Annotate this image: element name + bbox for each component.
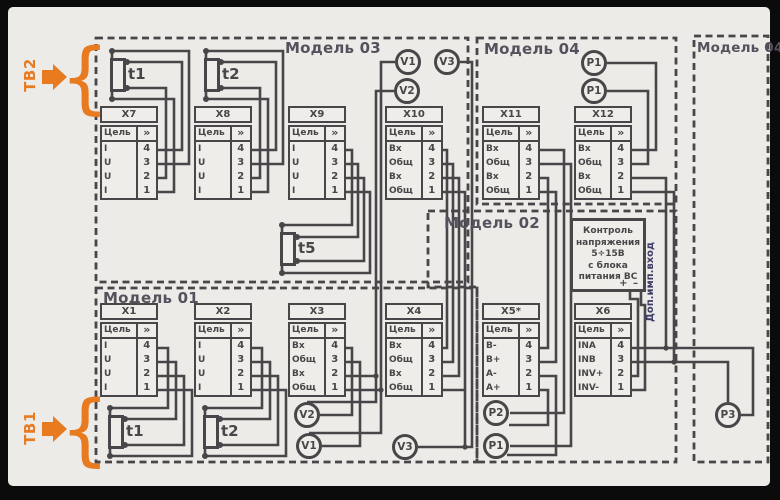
- signal-label: Вх: [486, 170, 518, 184]
- pin-number: 4: [423, 142, 442, 156]
- pin-column: 4321: [138, 339, 157, 395]
- pin-number: 1: [612, 184, 631, 198]
- signal-column: ВхОбщВхОбщ: [387, 142, 423, 198]
- connector-col-goal: Цель: [576, 324, 612, 337]
- connector-x9: X9Цель»IUUI4321: [288, 106, 346, 200]
- sensor-t1-bottom-label: t1: [126, 422, 144, 440]
- connector-col-pins-icon: »: [326, 127, 345, 140]
- signal-label: Вх: [389, 367, 421, 381]
- control-box-line: напряжения: [573, 238, 643, 250]
- signal-label: U: [292, 170, 324, 184]
- sensor-t1-top: [110, 58, 126, 92]
- pin-number: 3: [520, 353, 539, 367]
- connector-rows: ВхОбщВхОбщ4321: [387, 142, 441, 198]
- connector-col-pins-icon: »: [232, 324, 251, 337]
- signal-column: IUUI: [102, 142, 138, 198]
- connector-table: Цель»ВхОбщВхОбщ4321: [385, 322, 443, 397]
- signal-label: Вх: [486, 142, 518, 156]
- connector-title: X12: [574, 106, 632, 123]
- connector-header: Цель»: [196, 324, 250, 339]
- signal-column: В-В+А-А+: [484, 339, 520, 395]
- dop-imp-vhod-label: Доп.имп.вход: [645, 222, 659, 322]
- connector-col-pins-icon: »: [520, 127, 539, 140]
- signal-column: IUUI: [290, 142, 326, 198]
- connector-x10: X10Цель»ВхОбщВхОбщ4321: [385, 106, 443, 200]
- signal-label: Общ: [389, 353, 421, 367]
- pin-number: 2: [612, 170, 631, 184]
- connector-header: Цель»: [387, 324, 441, 339]
- connector-header: Цель»: [484, 324, 538, 339]
- connector-header: Цель»: [290, 127, 344, 142]
- pin-number: 4: [520, 339, 539, 353]
- pin-column: 4321: [612, 339, 631, 395]
- meter-v3-m01: V3: [392, 434, 418, 460]
- control-box-line: 5÷15В: [573, 249, 643, 261]
- signal-label: INV-: [578, 381, 610, 395]
- connector-table: Цель»IUUI4321: [288, 125, 346, 200]
- signal-label: I: [292, 142, 324, 156]
- connector-x5: X5*Цель»В-В+А-А+4321: [482, 303, 540, 397]
- signal-label: Вх: [578, 170, 610, 184]
- connector-col-goal: Цель: [387, 324, 423, 337]
- connector-rows: ВхОбщВхОбщ4321: [387, 339, 441, 395]
- pin-number: 2: [520, 170, 539, 184]
- connector-x3: X3Цель»ВхОбщВхОбщ4321: [288, 303, 346, 397]
- signal-label: INB: [578, 353, 610, 367]
- connector-x12: X12Цель»ВхОбщВхОбщ4321: [574, 106, 632, 200]
- signal-label: Общ: [389, 381, 421, 395]
- pin-number: 3: [612, 156, 631, 170]
- sensor-t2-bottom: [203, 415, 219, 449]
- connector-header: Цель»: [387, 127, 441, 142]
- pin-number: 1: [423, 381, 442, 395]
- sensor-t1-top-label: t1: [128, 65, 146, 83]
- signal-column: IUUI: [196, 142, 232, 198]
- control-box-line: с блока: [573, 261, 643, 273]
- connector-table: Цель»В-В+А-А+4321: [482, 322, 540, 397]
- pin-number: 4: [138, 142, 157, 156]
- connector-x2: X2Цель»IUUI4321: [194, 303, 252, 397]
- signal-label: А-: [486, 367, 518, 381]
- pin-number: 1: [326, 381, 345, 395]
- connector-rows: IUUI4321: [290, 142, 344, 198]
- signal-label: U: [104, 170, 136, 184]
- connector-rows: INAINBINV+INV-4321: [576, 339, 630, 395]
- pin-column: 4321: [326, 339, 345, 395]
- signal-label: I: [198, 339, 230, 353]
- connector-col-goal: Цель: [196, 324, 232, 337]
- sensor-t2-top: [204, 58, 220, 92]
- signal-label: I: [198, 142, 230, 156]
- pin-column: 4321: [423, 142, 442, 198]
- pin-number: 3: [232, 156, 251, 170]
- pin-column: 4321: [232, 339, 251, 395]
- connector-col-goal: Цель: [484, 324, 520, 337]
- connector-col-pins-icon: »: [232, 127, 251, 140]
- connector-table: Цель»INAINBINV+INV-4321: [574, 322, 632, 397]
- connector-col-pins-icon: »: [423, 324, 442, 337]
- connector-title: X5*: [482, 303, 540, 320]
- connector-rows: IUUI4321: [196, 142, 250, 198]
- pin-number: 1: [326, 184, 345, 198]
- pin-number: 2: [326, 170, 345, 184]
- pin-number: 3: [326, 353, 345, 367]
- model-04r-label: Модель 04Р: [697, 40, 780, 56]
- tb2-label: ТВ2: [21, 53, 39, 97]
- pin-number: 4: [612, 339, 631, 353]
- pin-number: 4: [138, 339, 157, 353]
- pin-column: 4321: [232, 142, 251, 198]
- tb2-brace: {: [60, 40, 110, 116]
- pin-number: 3: [520, 156, 539, 170]
- signal-column: INAINBINV+INV-: [576, 339, 612, 395]
- signal-label: Вх: [389, 142, 421, 156]
- model-04-label: Модель 04: [484, 40, 580, 58]
- signal-label: Вх: [389, 339, 421, 353]
- signal-column: ВхОбщВхОбщ: [290, 339, 326, 395]
- signal-label: U: [104, 353, 136, 367]
- signal-label: INA: [578, 339, 610, 353]
- connector-col-goal: Цель: [102, 127, 138, 140]
- signal-label: Общ: [486, 184, 518, 198]
- model-04r-boundary: [694, 36, 768, 462]
- pin-number: 3: [138, 353, 157, 367]
- connector-x11: X11Цель»ВхОбщВхОбщ4321: [482, 106, 540, 200]
- pin-number: 3: [326, 156, 345, 170]
- connector-header: Цель»: [102, 127, 156, 142]
- pin-number: 1: [423, 184, 442, 198]
- pin-number: 1: [232, 381, 251, 395]
- pin-number: 4: [612, 142, 631, 156]
- pin-number: 1: [232, 184, 251, 198]
- meter-v1-m01: V1: [296, 433, 322, 459]
- signal-label: Общ: [292, 353, 324, 367]
- connector-header: Цель»: [576, 324, 630, 339]
- connector-table: Цель»ВхОбщВхОбщ4321: [385, 125, 443, 200]
- signal-label: Вх: [578, 142, 610, 156]
- pin-number: 2: [423, 367, 442, 381]
- connector-table: Цель»ВхОбщВхОбщ4321: [482, 125, 540, 200]
- signal-label: Общ: [389, 184, 421, 198]
- sensor-t5-label: t5: [298, 239, 316, 257]
- pin-number: 2: [326, 367, 345, 381]
- pin-number: 2: [138, 367, 157, 381]
- connector-col-goal: Цель: [290, 324, 326, 337]
- tb1-brace: {: [60, 392, 110, 468]
- connector-x8: X8Цель»IUUI4321: [194, 106, 252, 200]
- signal-label: U: [198, 353, 230, 367]
- connector-col-pins-icon: »: [138, 324, 157, 337]
- pin-number: 3: [612, 353, 631, 367]
- connector-table: Цель»ВхОбщВхОбщ4321: [288, 322, 346, 397]
- connector-rows: IUUI4321: [102, 339, 156, 395]
- sensor-t2-top-label: t2: [222, 65, 240, 83]
- connector-rows: ВхОбщВхОбщ4321: [290, 339, 344, 395]
- signal-label: Вх: [292, 367, 324, 381]
- connector-col-pins-icon: »: [138, 127, 157, 140]
- pin-column: 4321: [612, 142, 631, 198]
- model-01-label: Модель 01: [103, 289, 199, 307]
- connector-col-pins-icon: »: [612, 324, 631, 337]
- signal-label: U: [104, 367, 136, 381]
- connector-rows: ВхОбщВхОбщ4321: [484, 142, 538, 198]
- connector-title: X2: [194, 303, 252, 320]
- signal-label: Общ: [486, 156, 518, 170]
- pin-column: 4321: [423, 339, 442, 395]
- signal-column: IUUI: [196, 339, 232, 395]
- meter-v2-m01: V2: [294, 402, 320, 428]
- pin-number: 1: [138, 381, 157, 395]
- signal-label: Вх: [389, 170, 421, 184]
- connector-table: Цель»IUUI4321: [100, 125, 158, 200]
- pin-number: 2: [612, 367, 631, 381]
- pin-number: 4: [232, 339, 251, 353]
- sensor-t2-bottom-label: t2: [221, 422, 239, 440]
- signal-label: I: [292, 184, 324, 198]
- meter-p2-m02: P2: [483, 400, 509, 426]
- signal-label: I: [198, 184, 230, 198]
- voltage-control-box: Контроль напряжения 5÷15В с блока питани…: [570, 218, 646, 292]
- signal-label: U: [198, 170, 230, 184]
- connector-header: Цель»: [290, 324, 344, 339]
- signal-label: U: [292, 156, 324, 170]
- meter-p1-m04-b: P1: [581, 78, 607, 104]
- meter-v1-top: V1: [395, 49, 421, 75]
- connector-col-pins-icon: »: [520, 324, 539, 337]
- schematic-page: Модель 03 Модель 04 Модель 04Р Модель 02…: [0, 0, 780, 500]
- signal-label: Общ: [578, 156, 610, 170]
- pin-number: 4: [520, 142, 539, 156]
- connector-col-goal: Цель: [387, 127, 423, 140]
- signal-label: Общ: [578, 184, 610, 198]
- connector-x1: X1Цель»IUUI4321: [100, 303, 158, 397]
- meter-v3-top: V3: [434, 49, 460, 75]
- pin-number: 4: [326, 142, 345, 156]
- connector-rows: IUUI4321: [102, 142, 156, 198]
- pin-number: 4: [326, 339, 345, 353]
- model-03-label: Модель 03: [285, 39, 381, 57]
- signal-label: Общ: [389, 156, 421, 170]
- meter-p1-m04-a: P1: [581, 50, 607, 76]
- pin-number: 2: [232, 170, 251, 184]
- connector-col-pins-icon: »: [326, 324, 345, 337]
- pin-number: 2: [232, 367, 251, 381]
- pin-column: 4321: [326, 142, 345, 198]
- sensor-t5: [280, 232, 296, 266]
- signal-label: U: [104, 156, 136, 170]
- signal-label: I: [104, 339, 136, 353]
- connector-col-goal: Цель: [196, 127, 232, 140]
- connector-title: X3: [288, 303, 346, 320]
- model-02-label: Модель 02: [444, 214, 540, 232]
- sensor-t1-bottom: [108, 415, 124, 449]
- connector-rows: ВхОбщВхОбщ4321: [576, 142, 630, 198]
- connector-title: X11: [482, 106, 540, 123]
- signal-label: I: [198, 381, 230, 395]
- connector-col-goal: Цель: [290, 127, 326, 140]
- signal-label: U: [198, 156, 230, 170]
- connector-title: X9: [288, 106, 346, 123]
- pin-number: 3: [232, 353, 251, 367]
- connector-title: X4: [385, 303, 443, 320]
- pin-number: 2: [423, 170, 442, 184]
- pin-number: 4: [232, 142, 251, 156]
- connector-rows: В-В+А-А+4321: [484, 339, 538, 395]
- signal-label: А+: [486, 381, 518, 395]
- signal-label: I: [104, 142, 136, 156]
- signal-label: В-: [486, 339, 518, 353]
- signal-label: INV+: [578, 367, 610, 381]
- connector-rows: IUUI4321: [196, 339, 250, 395]
- pin-number: 2: [138, 170, 157, 184]
- connector-header: Цель»: [196, 127, 250, 142]
- connector-table: Цель»IUUI4321: [194, 322, 252, 397]
- pin-column: 4321: [138, 142, 157, 198]
- connector-table: Цель»IUUI4321: [194, 125, 252, 200]
- signal-label: U: [198, 367, 230, 381]
- signal-label: I: [104, 184, 136, 198]
- signal-column: ВхОбщВхОбщ: [576, 142, 612, 198]
- connector-col-goal: Цель: [576, 127, 612, 140]
- pin-number: 1: [520, 381, 539, 395]
- pin-number: 3: [138, 156, 157, 170]
- meter-p3-m04r: P3: [715, 402, 741, 428]
- meter-p1-m02: P1: [483, 433, 509, 459]
- pin-number: 2: [520, 367, 539, 381]
- signal-column: ВхОбщВхОбщ: [387, 339, 423, 395]
- connector-col-goal: Цель: [484, 127, 520, 140]
- meter-v2-top: V2: [394, 78, 420, 104]
- pin-column: 4321: [520, 142, 539, 198]
- pin-column: 4321: [520, 339, 539, 395]
- connector-title: X6: [574, 303, 632, 320]
- signal-column: ВхОбщВхОбщ: [484, 142, 520, 198]
- signal-label: Общ: [292, 381, 324, 395]
- tb1-label: ТВ1: [21, 406, 39, 450]
- connector-title: X8: [194, 106, 252, 123]
- connector-col-pins-icon: »: [423, 127, 442, 140]
- pin-number: 3: [423, 156, 442, 170]
- pin-number: 1: [612, 381, 631, 395]
- pin-number: 4: [423, 339, 442, 353]
- pin-number: 1: [520, 184, 539, 198]
- control-box-line: Контроль: [573, 226, 643, 238]
- control-box-terminals: + –: [619, 278, 639, 289]
- connector-header: Цель»: [102, 324, 156, 339]
- connector-header: Цель»: [484, 127, 538, 142]
- pin-number: 1: [138, 184, 157, 198]
- pin-number: 3: [423, 353, 442, 367]
- connector-title: X10: [385, 106, 443, 123]
- connector-table: Цель»ВхОбщВхОбщ4321: [574, 125, 632, 200]
- connector-header: Цель»: [576, 127, 630, 142]
- connector-x4: X4Цель»ВхОбщВхОбщ4321: [385, 303, 443, 397]
- connector-col-pins-icon: »: [612, 127, 631, 140]
- signal-label: Вх: [292, 339, 324, 353]
- connector-x6: X6Цель»INAINBINV+INV-4321: [574, 303, 632, 397]
- signal-label: В+: [486, 353, 518, 367]
- connector-col-goal: Цель: [102, 324, 138, 337]
